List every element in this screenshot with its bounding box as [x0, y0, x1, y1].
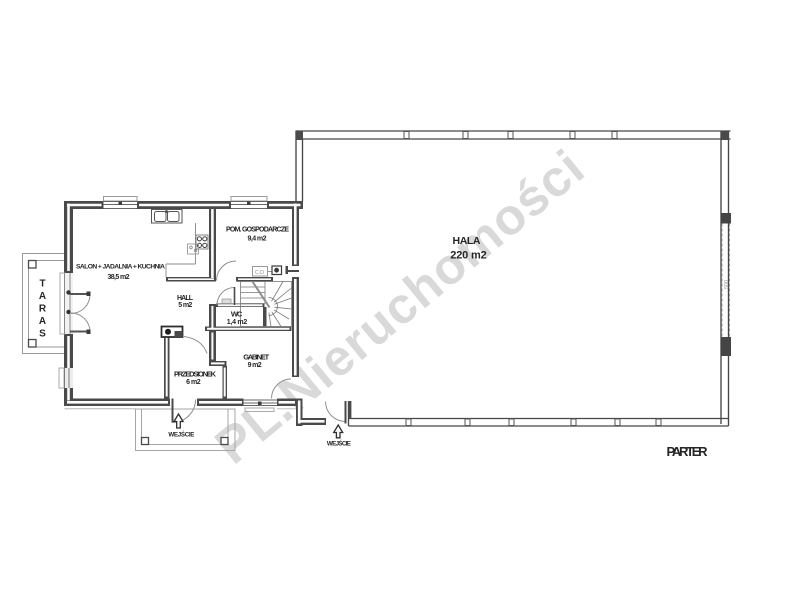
svg-text:POM. GOSPODARCZE: POM. GOSPODARCZE	[226, 227, 289, 234]
svg-text:5 m2: 5 m2	[178, 302, 192, 309]
svg-text:6 m2: 6 m2	[186, 379, 201, 386]
svg-text:A: A	[39, 291, 46, 302]
svg-text:WEJŚCIE: WEJŚCIE	[327, 441, 351, 448]
svg-text:GABINET: GABINET	[243, 352, 269, 361]
svg-text:38,5 m2: 38,5 m2	[108, 274, 130, 281]
svg-text:A: A	[39, 316, 46, 327]
svg-text:1,4 m2: 1,4 m2	[227, 319, 248, 326]
svg-text:WC: WC	[231, 310, 243, 319]
svg-text:HALA: HALA	[453, 235, 481, 247]
svg-text:9 m2: 9 m2	[248, 362, 262, 369]
svg-text:PRZEDSIONEK: PRZEDSIONEK	[174, 370, 217, 379]
svg-text:SALON + JADALNIA + KUCHNIA: SALON + JADALNIA + KUCHNIA	[76, 264, 165, 271]
svg-text:HALL: HALL	[177, 295, 194, 302]
svg-text:500: 500	[724, 280, 730, 289]
svg-text:T: T	[39, 279, 45, 290]
svg-text:PARTER: PARTER	[667, 444, 709, 459]
svg-text:C.O: C.O	[255, 270, 264, 276]
svg-text:9,4 m2: 9,4 m2	[248, 235, 267, 242]
svg-text:R: R	[39, 304, 47, 315]
svg-text:S: S	[39, 329, 46, 340]
svg-text:220 m2: 220 m2	[450, 250, 487, 262]
svg-text:WEJŚCIE: WEJŚCIE	[168, 431, 194, 438]
